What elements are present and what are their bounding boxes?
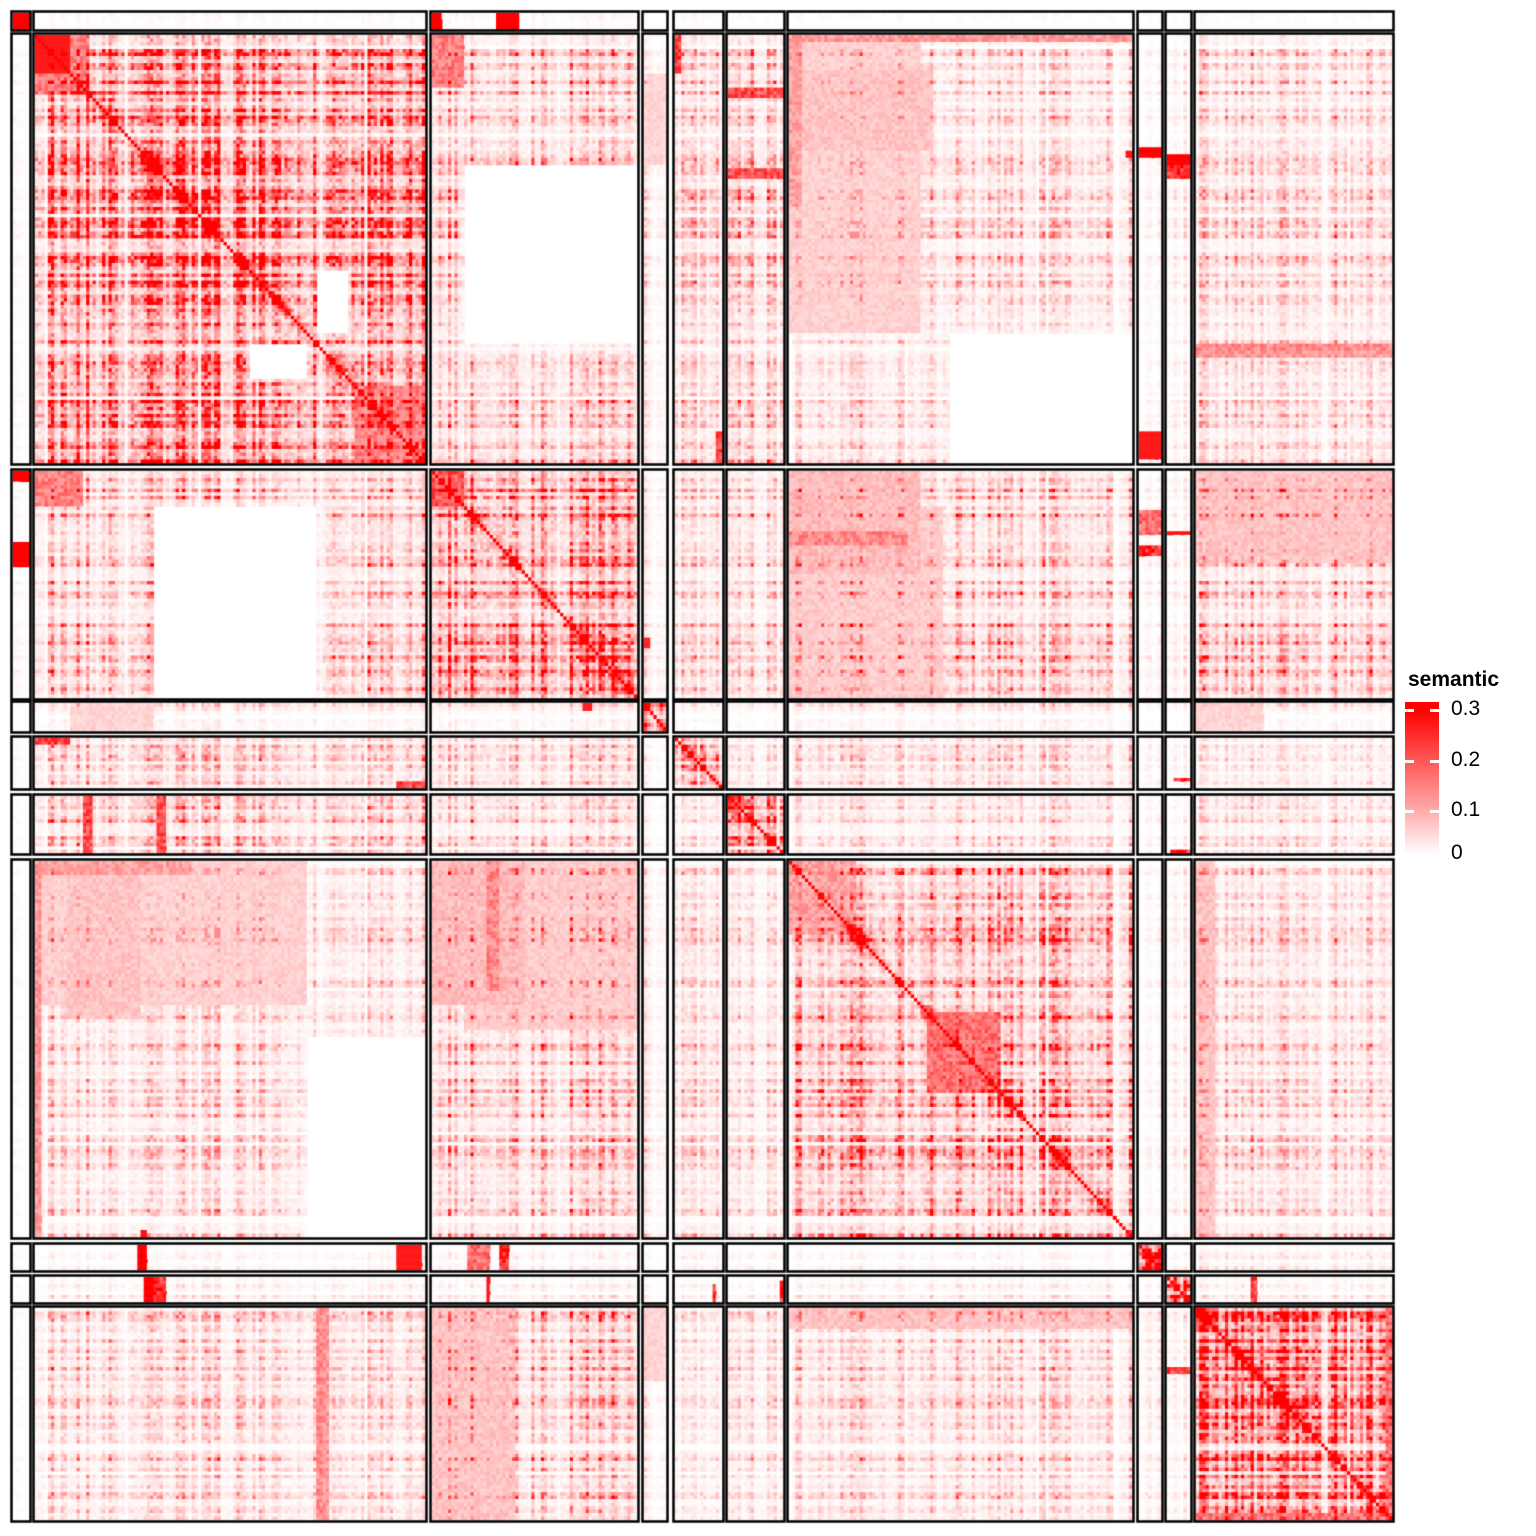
legend-colorbar — [1405, 702, 1439, 854]
legend-title: semantic — [1408, 668, 1499, 692]
legend-tick-mark — [1430, 810, 1439, 813]
legend-tick-mark — [1430, 709, 1439, 712]
figure: semantic 0.3 0.2 0.1 0 — [0, 0, 1536, 1536]
legend-tick-mark — [1405, 760, 1414, 763]
legend-tick-mark — [1405, 810, 1414, 813]
legend-tick-label-0.1: 0.1 — [1451, 798, 1480, 822]
legend: semantic 0.3 0.2 0.1 0 — [1399, 668, 1536, 868]
legend-tick-label-0: 0 — [1451, 841, 1463, 865]
legend-tick-label-0.3: 0.3 — [1451, 697, 1480, 721]
legend-tick-mark — [1405, 709, 1414, 712]
legend-tick-mark — [1430, 760, 1439, 763]
legend-tick-label-0.2: 0.2 — [1451, 748, 1480, 772]
similarity-heatmap — [0, 0, 1536, 1536]
